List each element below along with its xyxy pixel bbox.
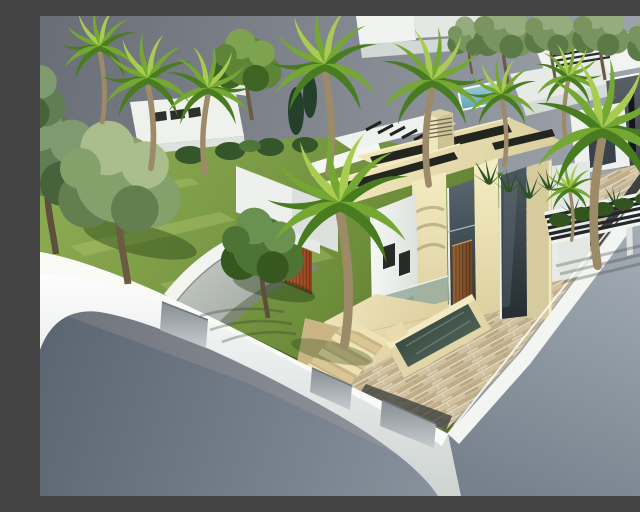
architectural-render [40,16,640,496]
